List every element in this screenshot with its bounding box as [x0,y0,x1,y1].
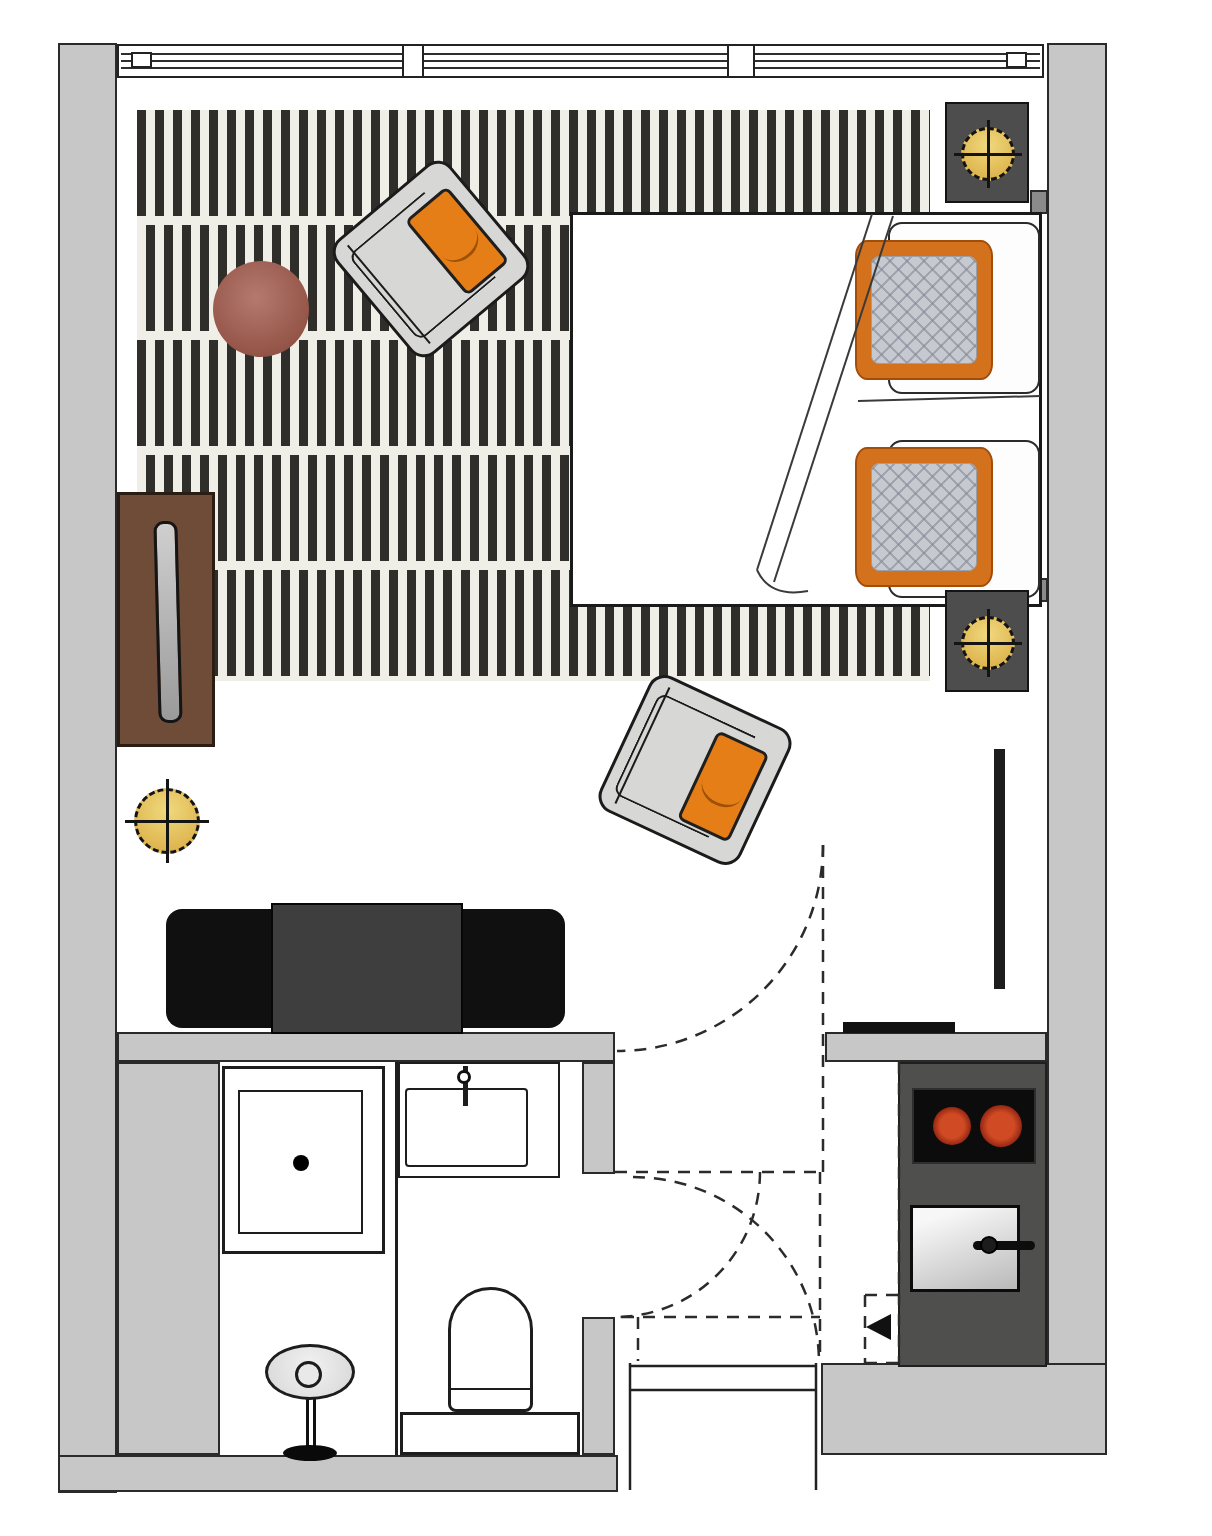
wall-pier-top [1030,190,1048,214]
tv [271,903,463,1034]
wall-cabinet [117,492,215,747]
burner-left [933,1107,971,1145]
ceiling-lamp-1 [954,120,1022,188]
door-swing-annotations [615,845,899,1363]
window-post-right [1006,52,1027,68]
ceiling-lamp-3 [125,779,209,863]
toilet-base [400,1412,580,1455]
stool-base [283,1445,337,1461]
right-wall [1047,43,1107,1455]
kitchen-wall-cap [843,1022,955,1033]
window-mullion-1 [402,46,424,76]
room-door-swing [617,845,823,1051]
faucet-knob [457,1070,471,1084]
lamp-crosshair [987,120,990,188]
toilet-seat-line [450,1388,531,1390]
bathroom-divider-wall [117,1032,615,1062]
window-glass-line [121,67,1040,69]
armchair-2 [593,669,798,871]
entry-threshold [630,1363,816,1490]
orange-pillow-1 [855,240,993,380]
burner-right [980,1105,1022,1147]
round-side-table [213,261,309,357]
toilet-bowl [448,1287,533,1412]
oven-handle-knob [980,1236,998,1254]
left-wall [58,43,117,1493]
bottom-left-wall [58,1455,618,1492]
window-band [117,44,1044,78]
entry-arrow-icon [866,1314,891,1340]
cabinet-mirror-slot [153,521,182,724]
lamp-crosshair [987,609,990,677]
window-post-left [131,52,152,68]
bathroom-vanity-strip [117,1062,220,1455]
pillow-quilt-panel [871,463,977,571]
lamp-crosshair [166,779,169,863]
nightstand-2 [945,590,1029,692]
nightstand-1 [945,102,1029,203]
stool-joint [295,1361,322,1388]
cushion-seam [429,214,486,271]
entry-door-swing [633,1177,819,1363]
bathroom-right-wall-lower [582,1317,615,1455]
bottom-right-wall [821,1363,1107,1455]
armchair-body [593,669,798,871]
wardrobe-panel [994,749,1005,989]
ceiling-lamp-2 [954,609,1022,677]
shower-drain [293,1155,309,1171]
orange-pillow-2 [855,447,993,587]
pillow-quilt-panel [871,256,977,364]
cushion-seam [695,761,752,814]
window-glass-line [121,60,1040,62]
bathroom-door-swing [615,1172,760,1317]
window-glass-line [121,53,1040,55]
kitchen-divider-wall [825,1032,1047,1062]
floor-plan [0,0,1212,1536]
window-mullion-2 [727,46,755,76]
bathroom-right-wall-upper [582,1062,615,1174]
